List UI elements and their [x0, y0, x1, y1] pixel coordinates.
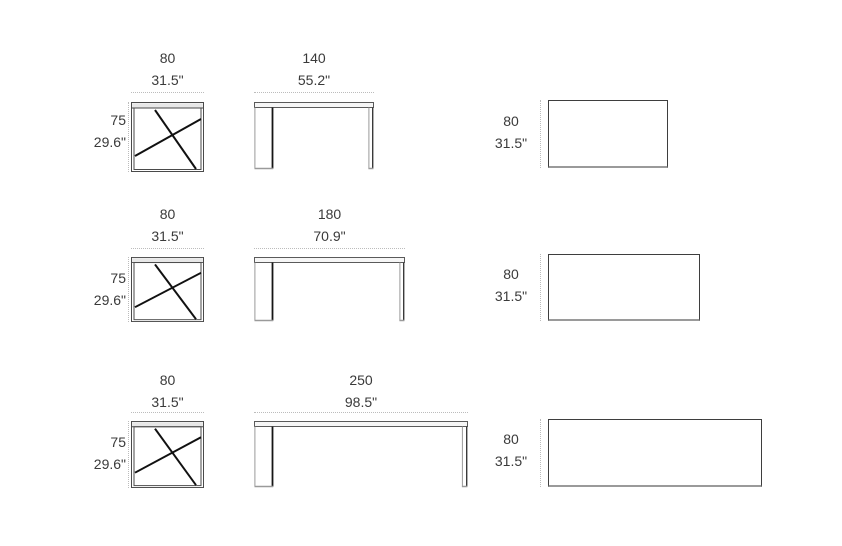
side-width-in: 31.5"	[131, 391, 204, 413]
front-width-cm: 250	[254, 369, 468, 391]
tabletop	[255, 422, 468, 427]
front-width-in: 98.5"	[254, 391, 468, 413]
side-view-drawing	[131, 102, 204, 172]
side-height-in: 29.6"	[58, 131, 126, 153]
front-width-label: 180 70.9"	[254, 203, 405, 247]
top-depth-cm: 80	[471, 263, 551, 285]
top-depth-label: 80 31.5"	[471, 110, 551, 154]
top-depth-dimension-line	[540, 100, 541, 168]
side-height-in: 29.6"	[58, 453, 126, 475]
side-height-cm: 75	[58, 109, 126, 131]
front-width-label: 140 55.2"	[254, 47, 374, 91]
side-height-dimension-line	[128, 102, 129, 172]
top-depth-cm: 80	[471, 110, 551, 132]
side-width-in: 31.5"	[131, 69, 204, 91]
top-depth-in: 31.5"	[471, 132, 551, 154]
top-depth-in: 31.5"	[471, 285, 551, 307]
top-view-drawing	[548, 419, 762, 487]
top-depth-cm: 80	[471, 428, 551, 450]
side-height-cm: 75	[58, 431, 126, 453]
side-view-drawing	[131, 257, 204, 322]
front-width-cm: 140	[254, 47, 374, 69]
side-width-dimension-line	[131, 248, 204, 249]
front-width-dimension-line	[254, 248, 405, 249]
side-height-cm: 75	[58, 267, 126, 289]
tabletop-edge	[132, 422, 203, 426]
top-depth-in: 31.5"	[471, 450, 551, 472]
side-height-label: 75 29.6"	[58, 431, 126, 475]
dimension-sheet: 80 31.5" 140 55.2" 75 29.6" 80 31.5"	[0, 0, 842, 546]
front-view-drawing	[254, 421, 468, 488]
top-depth-dimension-line	[540, 419, 541, 487]
side-width-cm: 80	[131, 369, 204, 391]
top-view-drawing	[548, 100, 668, 168]
top-depth-dimension-line	[540, 254, 541, 321]
front-width-dimension-line	[254, 412, 468, 413]
front-width-label: 250 98.5"	[254, 369, 468, 413]
front-width-in: 70.9"	[254, 225, 405, 247]
side-height-label: 75 29.6"	[58, 109, 126, 153]
tabletop-edge	[132, 258, 203, 262]
front-width-in: 55.2"	[254, 69, 374, 91]
front-view-drawing	[254, 102, 374, 170]
side-width-label: 80 31.5"	[131, 369, 204, 413]
front-width-dimension-line	[254, 92, 374, 93]
side-height-dimension-line	[128, 257, 129, 322]
side-width-dimension-line	[131, 412, 204, 413]
side-width-label: 80 31.5"	[131, 47, 204, 91]
side-height-label: 75 29.6"	[58, 267, 126, 311]
side-width-label: 80 31.5"	[131, 203, 204, 247]
front-width-cm: 180	[254, 203, 405, 225]
tabletop-edge	[132, 103, 203, 107]
side-width-cm: 80	[131, 203, 204, 225]
tabletop	[255, 258, 405, 263]
side-height-in: 29.6"	[58, 289, 126, 311]
side-height-dimension-line	[128, 421, 129, 488]
top-depth-label: 80 31.5"	[471, 263, 551, 307]
top-view-drawing	[548, 254, 700, 321]
top-depth-label: 80 31.5"	[471, 428, 551, 472]
front-view-drawing	[254, 257, 405, 322]
side-width-in: 31.5"	[131, 225, 204, 247]
tabletop	[255, 103, 374, 108]
side-width-dimension-line	[131, 92, 204, 93]
side-view-drawing	[131, 421, 204, 488]
side-width-cm: 80	[131, 47, 204, 69]
